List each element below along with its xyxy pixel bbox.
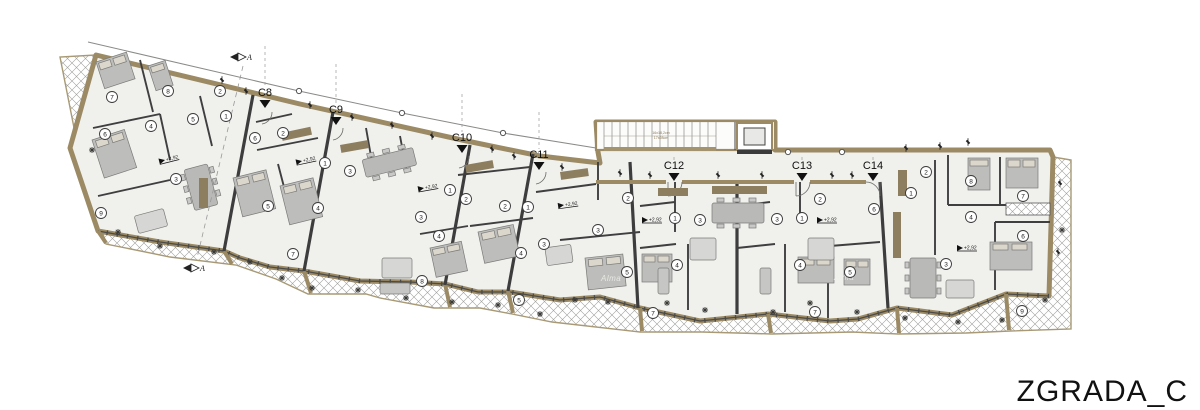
room-number-circle: 8 <box>163 86 174 97</box>
svg-text:1: 1 <box>800 215 804 222</box>
svg-text:4: 4 <box>316 205 320 212</box>
svg-text:6: 6 <box>103 131 107 138</box>
room-number-circle: 3 <box>171 174 182 185</box>
watermark-text: Alma <box>600 274 621 283</box>
room-number-circle: 4 <box>146 121 157 132</box>
room-number-circle: 7 <box>810 307 821 318</box>
room-number-circle: 1 <box>221 111 232 122</box>
room-number-circle: 6 <box>869 204 880 215</box>
svg-text:1: 1 <box>526 204 530 211</box>
unit-label-text: C11 <box>529 149 548 161</box>
svg-text:3: 3 <box>596 227 600 234</box>
unit-label-text: C9 <box>329 104 343 116</box>
room-number-circle: 7 <box>107 92 118 103</box>
svg-text:1: 1 <box>909 190 913 197</box>
svg-text:4: 4 <box>437 233 441 240</box>
bed <box>1006 158 1038 188</box>
svg-text:5: 5 <box>191 116 195 123</box>
sofa <box>658 268 669 294</box>
rug <box>545 244 573 265</box>
svg-text:4: 4 <box>149 123 153 130</box>
floorplan-drawing: 16x18,2cm 17x28cm <box>0 0 1200 410</box>
svg-text:5: 5 <box>266 203 270 210</box>
svg-text:7: 7 <box>813 309 817 316</box>
svg-text:2: 2 <box>218 88 222 95</box>
room-number-circle: 4 <box>434 231 445 242</box>
drawing-title: ZGRADA_C <box>1017 375 1188 408</box>
svg-text:9: 9 <box>1020 308 1024 315</box>
room-number-circle: 9 <box>1017 306 1028 317</box>
room-number-circle: 3 <box>345 166 356 177</box>
svg-text:2: 2 <box>464 196 468 203</box>
unit-label-text: C13 <box>792 160 812 172</box>
room-number-circle: 4 <box>966 212 977 223</box>
svg-text:5: 5 <box>625 269 629 276</box>
room-number-circle: 3 <box>416 212 427 223</box>
svg-text:3: 3 <box>348 168 352 175</box>
room-number-circle: 7 <box>288 249 299 260</box>
bed <box>430 241 468 277</box>
room-number-circle: 2 <box>921 167 932 178</box>
rug <box>690 238 716 260</box>
bed <box>478 225 520 264</box>
svg-text:7: 7 <box>291 251 295 258</box>
section-marker-top: A <box>230 53 252 62</box>
room-number-circle: 1 <box>670 213 681 224</box>
room-number-circle: 1 <box>906 188 917 199</box>
room-number-circle: 2 <box>278 128 289 139</box>
svg-text:7: 7 <box>1021 193 1025 200</box>
svg-text:4: 4 <box>519 250 523 257</box>
room-number-circle: 2 <box>815 194 826 205</box>
room-number-circle: 7 <box>1018 191 1029 202</box>
room-number-circle: 5 <box>188 114 199 125</box>
stair-note-line1: 16x18,2cm <box>652 131 670 135</box>
unit-label-text: C8 <box>258 87 272 99</box>
room-number-circle: 4 <box>313 203 324 214</box>
stair-note-line2: 17x28cm <box>654 136 669 140</box>
room-number-circle: 2 <box>500 201 511 212</box>
sofa <box>760 268 771 294</box>
svg-text:8: 8 <box>166 88 170 95</box>
elevation-label: +2,92 <box>649 218 662 224</box>
svg-text:2: 2 <box>626 195 630 202</box>
unit-label-C9: C9 <box>329 64 343 125</box>
elevation-label: +2,92 <box>964 246 977 252</box>
rug <box>382 258 412 278</box>
svg-text:2: 2 <box>924 169 928 176</box>
svg-text:2: 2 <box>818 196 822 203</box>
svg-text:6: 6 <box>872 206 876 213</box>
floorplan-page: 16x18,2cm 17x28cm <box>0 0 1200 410</box>
section-marker-label: A <box>199 264 205 273</box>
room-number-circle: 1 <box>320 158 331 169</box>
svg-text:3: 3 <box>174 176 178 183</box>
wardrobe <box>1006 203 1050 215</box>
room-number-circle: 5 <box>622 267 633 278</box>
svg-text:6: 6 <box>253 135 257 142</box>
room-number-circle: 3 <box>772 214 783 225</box>
room-number-circle: 5 <box>263 201 274 212</box>
svg-text:3: 3 <box>542 241 546 248</box>
svg-text:2: 2 <box>503 203 507 210</box>
svg-text:9: 9 <box>99 210 103 217</box>
svg-text:5: 5 <box>848 269 852 276</box>
room-number-circle: 3 <box>539 239 550 250</box>
section-marker-label: A <box>246 53 252 62</box>
elevation-label: +2,92 <box>824 218 837 224</box>
svg-text:1: 1 <box>224 113 228 120</box>
room-number-circle: 5 <box>845 267 856 278</box>
svg-text:4: 4 <box>798 262 802 269</box>
room-number-circle: 6 <box>250 133 261 144</box>
svg-text:3: 3 <box>775 216 779 223</box>
svg-text:3: 3 <box>944 261 948 268</box>
stair-core: 16x18,2cm 17x28cm <box>596 121 775 154</box>
svg-text:7: 7 <box>110 94 114 101</box>
unit-label-text: C12 <box>664 160 684 172</box>
room-number-circle: 4 <box>795 260 806 271</box>
section-marker-bottom: A <box>183 264 205 273</box>
svg-text:2: 2 <box>281 130 285 137</box>
rug <box>808 238 834 260</box>
svg-text:1: 1 <box>448 187 452 194</box>
unit-label-C8: C8 <box>258 46 272 108</box>
bed <box>585 254 626 290</box>
room-number-circle: 8 <box>966 176 977 187</box>
room-number-circle: 6 <box>1018 231 1029 242</box>
svg-text:7: 7 <box>651 310 655 317</box>
rug <box>946 280 974 298</box>
room-number-circle: 8 <box>417 276 428 287</box>
unit-label-text: C14 <box>863 160 883 172</box>
room-number-circle: 3 <box>695 215 706 226</box>
room-number-circle: 7 <box>648 308 659 319</box>
svg-text:8: 8 <box>969 178 973 185</box>
svg-text:4: 4 <box>675 262 679 269</box>
room-number-circle: 4 <box>516 248 527 259</box>
room-number-circle: 2 <box>461 194 472 205</box>
svg-text:1: 1 <box>323 160 327 167</box>
room-number-circle: 9 <box>96 208 107 219</box>
svg-text:6: 6 <box>1021 233 1025 240</box>
watermark-text: Alma <box>482 276 503 285</box>
svg-text:1: 1 <box>673 215 677 222</box>
dining-table <box>905 258 941 298</box>
svg-text:8: 8 <box>420 278 424 285</box>
bed <box>990 242 1032 270</box>
sofa <box>380 283 410 294</box>
room-number-circle: 4 <box>672 260 683 271</box>
svg-text:3: 3 <box>698 217 702 224</box>
room-number-circle: 2 <box>623 193 634 204</box>
room-number-circle: 1 <box>523 202 534 213</box>
room-number-circle: 1 <box>445 185 456 196</box>
room-number-circle: 3 <box>941 259 952 270</box>
elevator <box>735 122 772 154</box>
room-number-circle: 5 <box>514 295 525 306</box>
room-number-circle: 3 <box>593 225 604 236</box>
svg-text:4: 4 <box>969 214 973 221</box>
room-number-circle: 2 <box>215 86 226 97</box>
unit-label-text: C10 <box>452 132 472 144</box>
room-number-circle: 6 <box>100 129 111 140</box>
room-number-circle: 1 <box>797 213 808 224</box>
svg-text:5: 5 <box>517 297 521 304</box>
svg-text:3: 3 <box>419 214 423 221</box>
